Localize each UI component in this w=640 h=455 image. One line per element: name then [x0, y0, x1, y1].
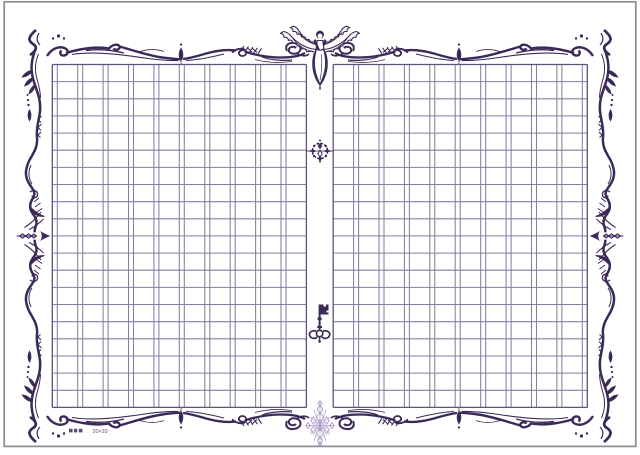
svg-text:20×20: 20×20: [93, 429, 108, 435]
